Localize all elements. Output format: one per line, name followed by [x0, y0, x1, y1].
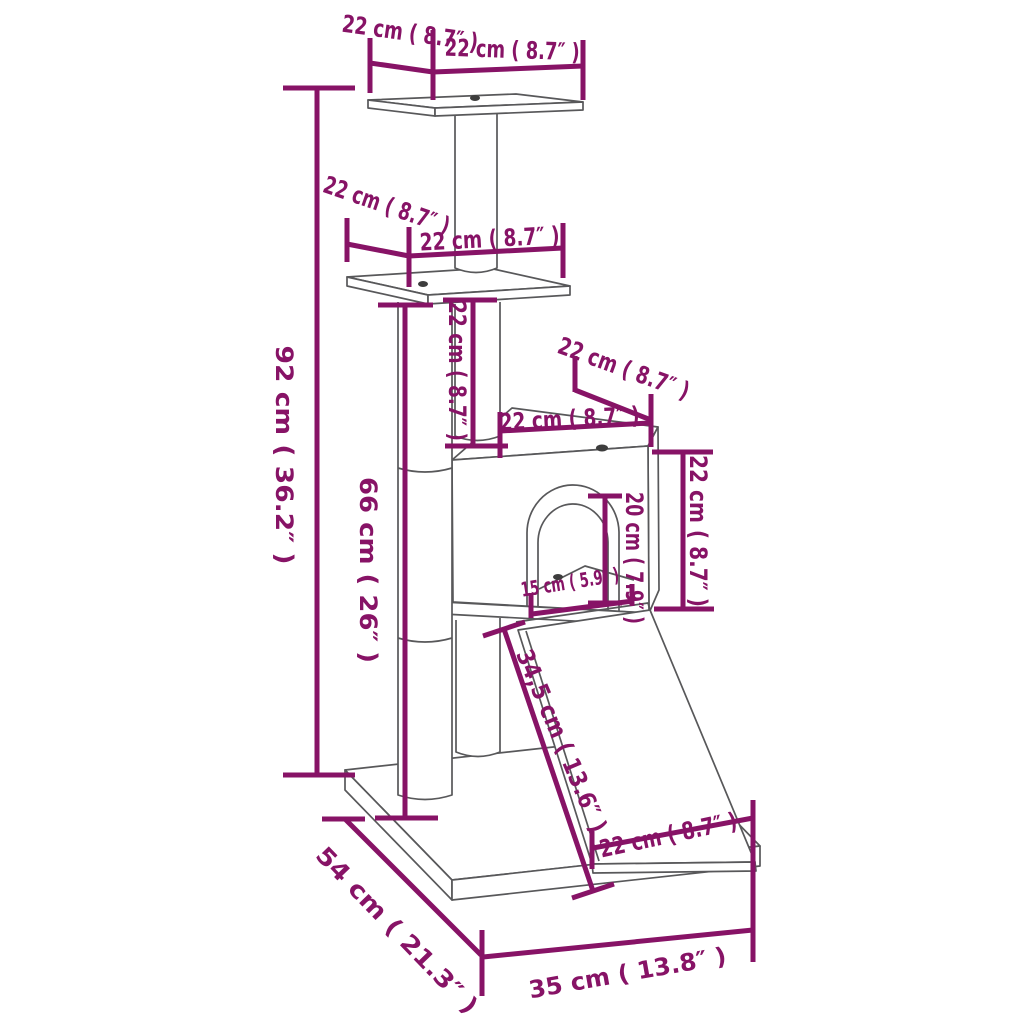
dim-line — [347, 244, 409, 256]
dimension-diagram: 22 cm ( 8.7″ ) 22 cm ( 8.7″ ) 22 cm ( 8.… — [0, 0, 1024, 1024]
house-support-post — [456, 618, 500, 757]
main-post-height-label: 66 cm ( 26″ ) — [354, 477, 382, 663]
dimension-top-platform: 22 cm ( 8.7″ ) 22 cm ( 8.7″ ) — [340, 10, 583, 100]
dim-line — [433, 66, 583, 72]
house-screw-dot — [596, 445, 608, 452]
ramp-bottom-thickness — [592, 862, 756, 873]
dimension-house-height: 22 cm ( 8.7″ ) — [652, 452, 714, 609]
top-platform-screw-dot — [470, 95, 480, 101]
total-height-label: 92 cm ( 36.2″ ) — [270, 346, 298, 565]
dimension-mid-platform: 22 cm ( 8.7″ ) 22 cm ( 8.7″ ) — [320, 171, 563, 287]
house-height-label: 22 cm ( 8.7″ ) — [684, 455, 712, 607]
top-platform-width-label: 22 cm ( 8.7″ ) — [444, 34, 580, 67]
upper-post-height-label: 22 cm ( 8.7″ ) — [443, 301, 471, 441]
mid-platform-screw-dot — [418, 281, 428, 287]
top-platform — [368, 94, 583, 116]
cat-tree-drawing: 22 cm ( 8.7″ ) 22 cm ( 8.7″ ) 22 cm ( 8.… — [0, 0, 1024, 1024]
dim-line — [370, 63, 433, 72]
